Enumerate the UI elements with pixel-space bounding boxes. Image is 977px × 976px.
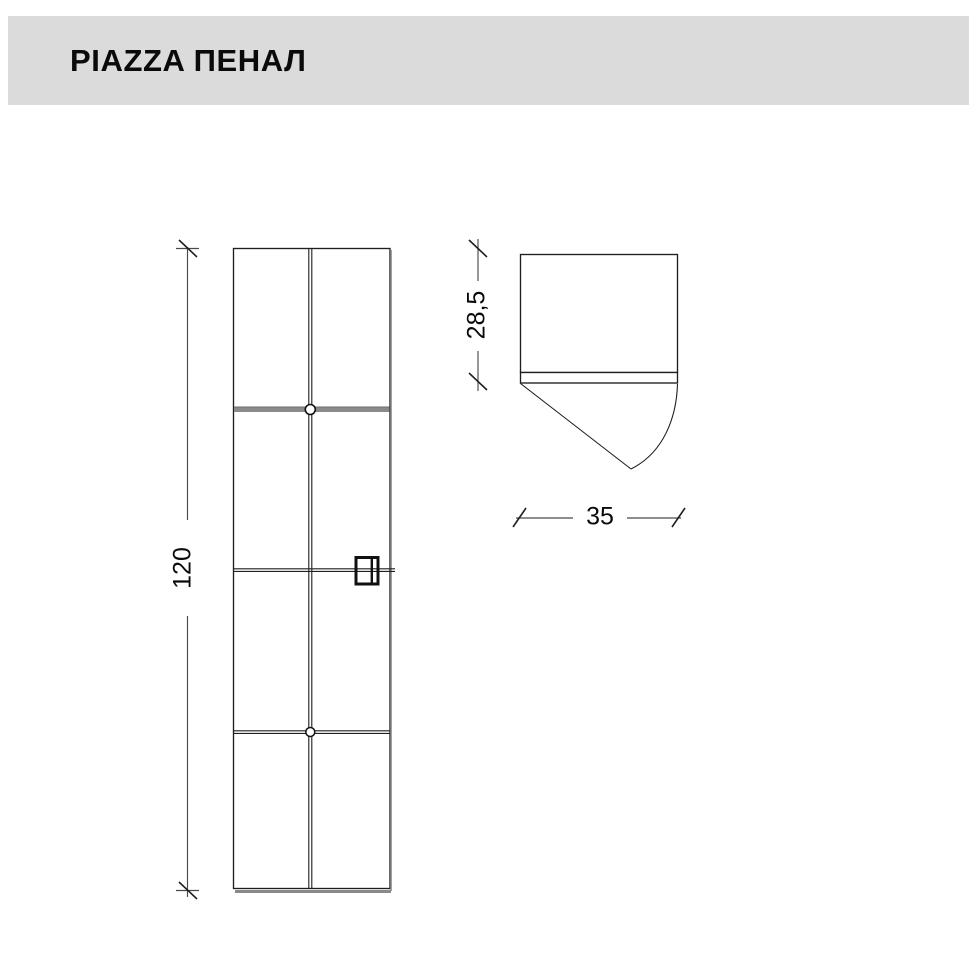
carcass-outline bbox=[521, 255, 678, 373]
hinge-dot-upper bbox=[305, 405, 315, 415]
hinge-dot-lower bbox=[306, 728, 315, 737]
front-view bbox=[234, 249, 396, 892]
door-open-edge bbox=[521, 384, 632, 470]
door-panel bbox=[521, 373, 678, 384]
height-dimension-label: 120 bbox=[169, 547, 198, 589]
plan-view bbox=[521, 255, 678, 470]
depth-dimension-label: 28,5 bbox=[463, 291, 492, 340]
width-dimension-label: 35 bbox=[586, 503, 614, 532]
technical-drawing bbox=[0, 0, 977, 976]
page: PIAZZA ПЕНАЛ bbox=[0, 0, 977, 976]
door-swing-arc bbox=[631, 384, 678, 469]
